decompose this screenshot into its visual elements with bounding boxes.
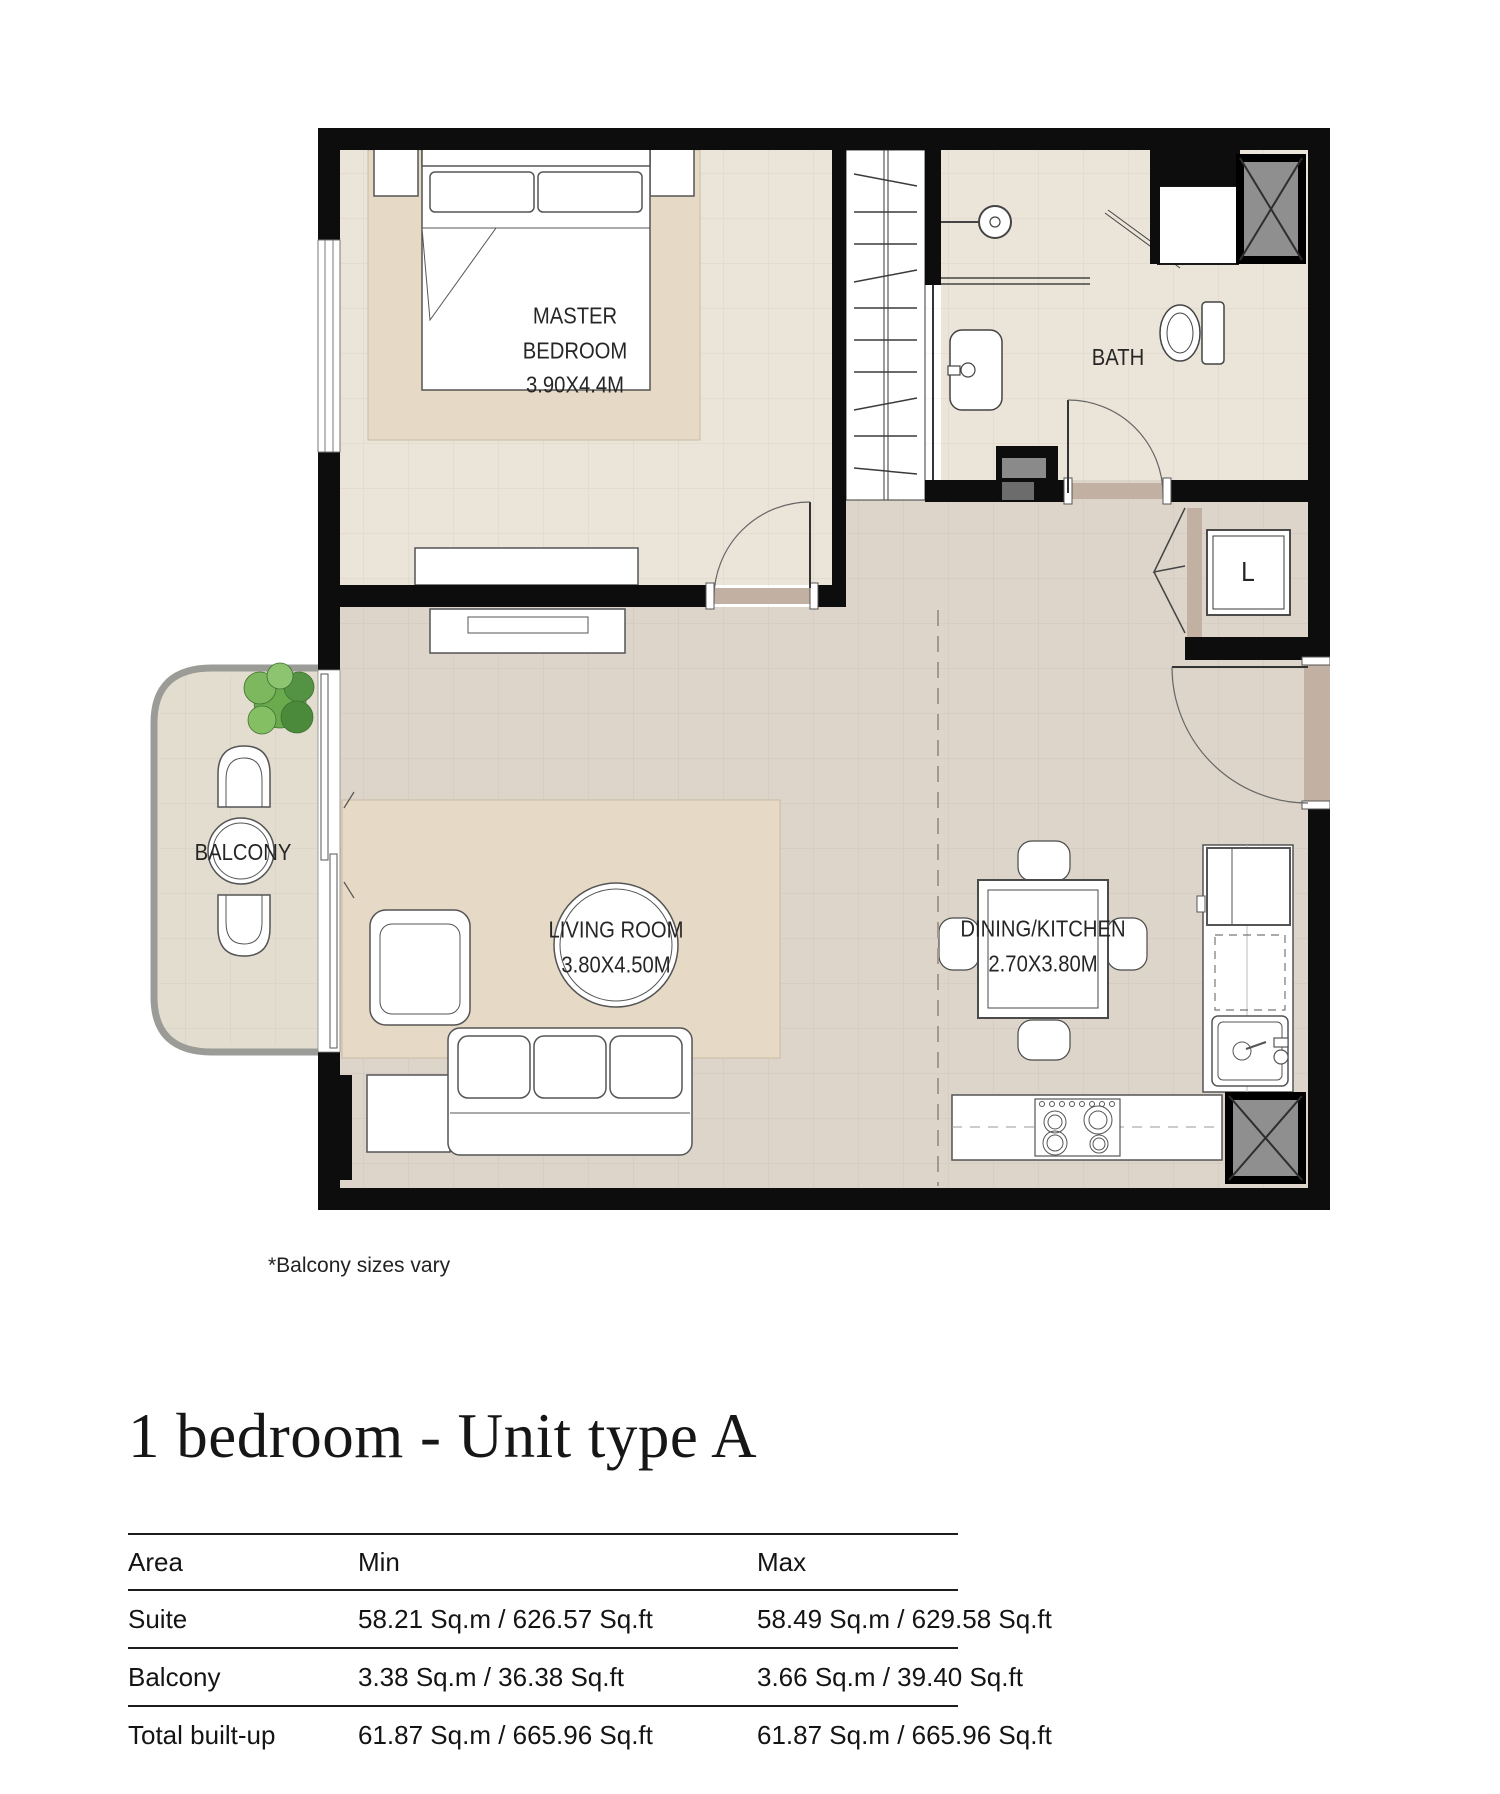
service-shaft <box>1229 1096 1302 1180</box>
bedroom-window <box>318 240 340 452</box>
floorplan-sheet: MASTER BEDROOM 3.90X4.4M BATH L LIVING R… <box>0 0 1500 1794</box>
pillow <box>430 172 534 212</box>
hall-cabinet <box>1002 482 1034 500</box>
service-shaft <box>1240 158 1302 260</box>
min-value: 61.87 Sq.m / 665.96 Sq.ft <box>358 1720 757 1751</box>
nightstand <box>650 148 694 196</box>
table-row: Suite 58.21 Sq.m / 626.57 Sq.ft 58.49 Sq… <box>128 1591 958 1649</box>
stove <box>1035 1099 1120 1156</box>
max-value: 58.49 Sq.m / 629.58 Sq.ft <box>757 1604 958 1635</box>
living-room-label: LIVING ROOM 3.80X4.50M <box>549 913 684 982</box>
kitchen-sink <box>1212 1016 1288 1086</box>
fridge <box>1197 848 1290 925</box>
plant-icon <box>244 663 314 734</box>
area-table: Area Min Max Suite 58.21 Sq.m / 626.57 S… <box>128 1533 958 1763</box>
dining-chair <box>1018 1020 1070 1060</box>
row-label: Total built-up <box>128 1720 358 1751</box>
pillow <box>538 172 642 212</box>
sofa <box>448 1028 692 1155</box>
duct-niche <box>1158 186 1238 264</box>
min-value: 3.38 Sq.m / 36.38 Sq.ft <box>358 1662 757 1693</box>
dining-chair <box>1018 841 1070 881</box>
wardrobe-closet <box>846 150 925 500</box>
page-title: 1 bedroom - Unit type A <box>128 1400 757 1473</box>
balcony-note: *Balcony sizes vary <box>268 1254 450 1278</box>
dining-kitchen-label: DINING/KITCHEN 2.70X3.80M <box>960 912 1125 981</box>
row-label: Suite <box>128 1604 358 1635</box>
table-row: Balcony 3.38 Sq.m / 36.38 Sq.ft 3.66 Sq.… <box>128 1649 958 1707</box>
min-value: 58.21 Sq.m / 626.57 Sq.ft <box>358 1604 757 1635</box>
floor-plan-drawing <box>140 128 1330 1210</box>
column-header-max: Max <box>757 1547 958 1578</box>
bath-label: BATH <box>1092 340 1144 375</box>
column-header-area: Area <box>128 1547 358 1578</box>
row-label: Balcony <box>128 1662 358 1693</box>
nightstand <box>374 148 418 196</box>
column-header-min: Min <box>358 1547 757 1578</box>
laundry-label: L <box>1241 551 1255 593</box>
max-value: 3.66 Sq.m / 39.40 Sq.ft <box>757 1662 958 1693</box>
toilet <box>1160 302 1224 364</box>
side-table <box>367 1075 450 1152</box>
dresser <box>415 548 638 585</box>
max-value: 61.87 Sq.m / 665.96 Sq.ft <box>757 1720 958 1751</box>
bath-sink <box>948 330 1002 410</box>
master-bedroom-label: MASTER BEDROOM 3.90X4.4M <box>509 298 641 402</box>
armchair <box>370 910 470 1025</box>
balcony-chair <box>218 746 270 807</box>
balcony-label: BALCONY <box>195 835 292 870</box>
balcony-chair <box>218 895 270 956</box>
hall-cabinet <box>1002 458 1046 478</box>
table-row: Total built-up 61.87 Sq.m / 665.96 Sq.ft… <box>128 1707 958 1763</box>
table-header-row: Area Min Max <box>128 1533 958 1591</box>
